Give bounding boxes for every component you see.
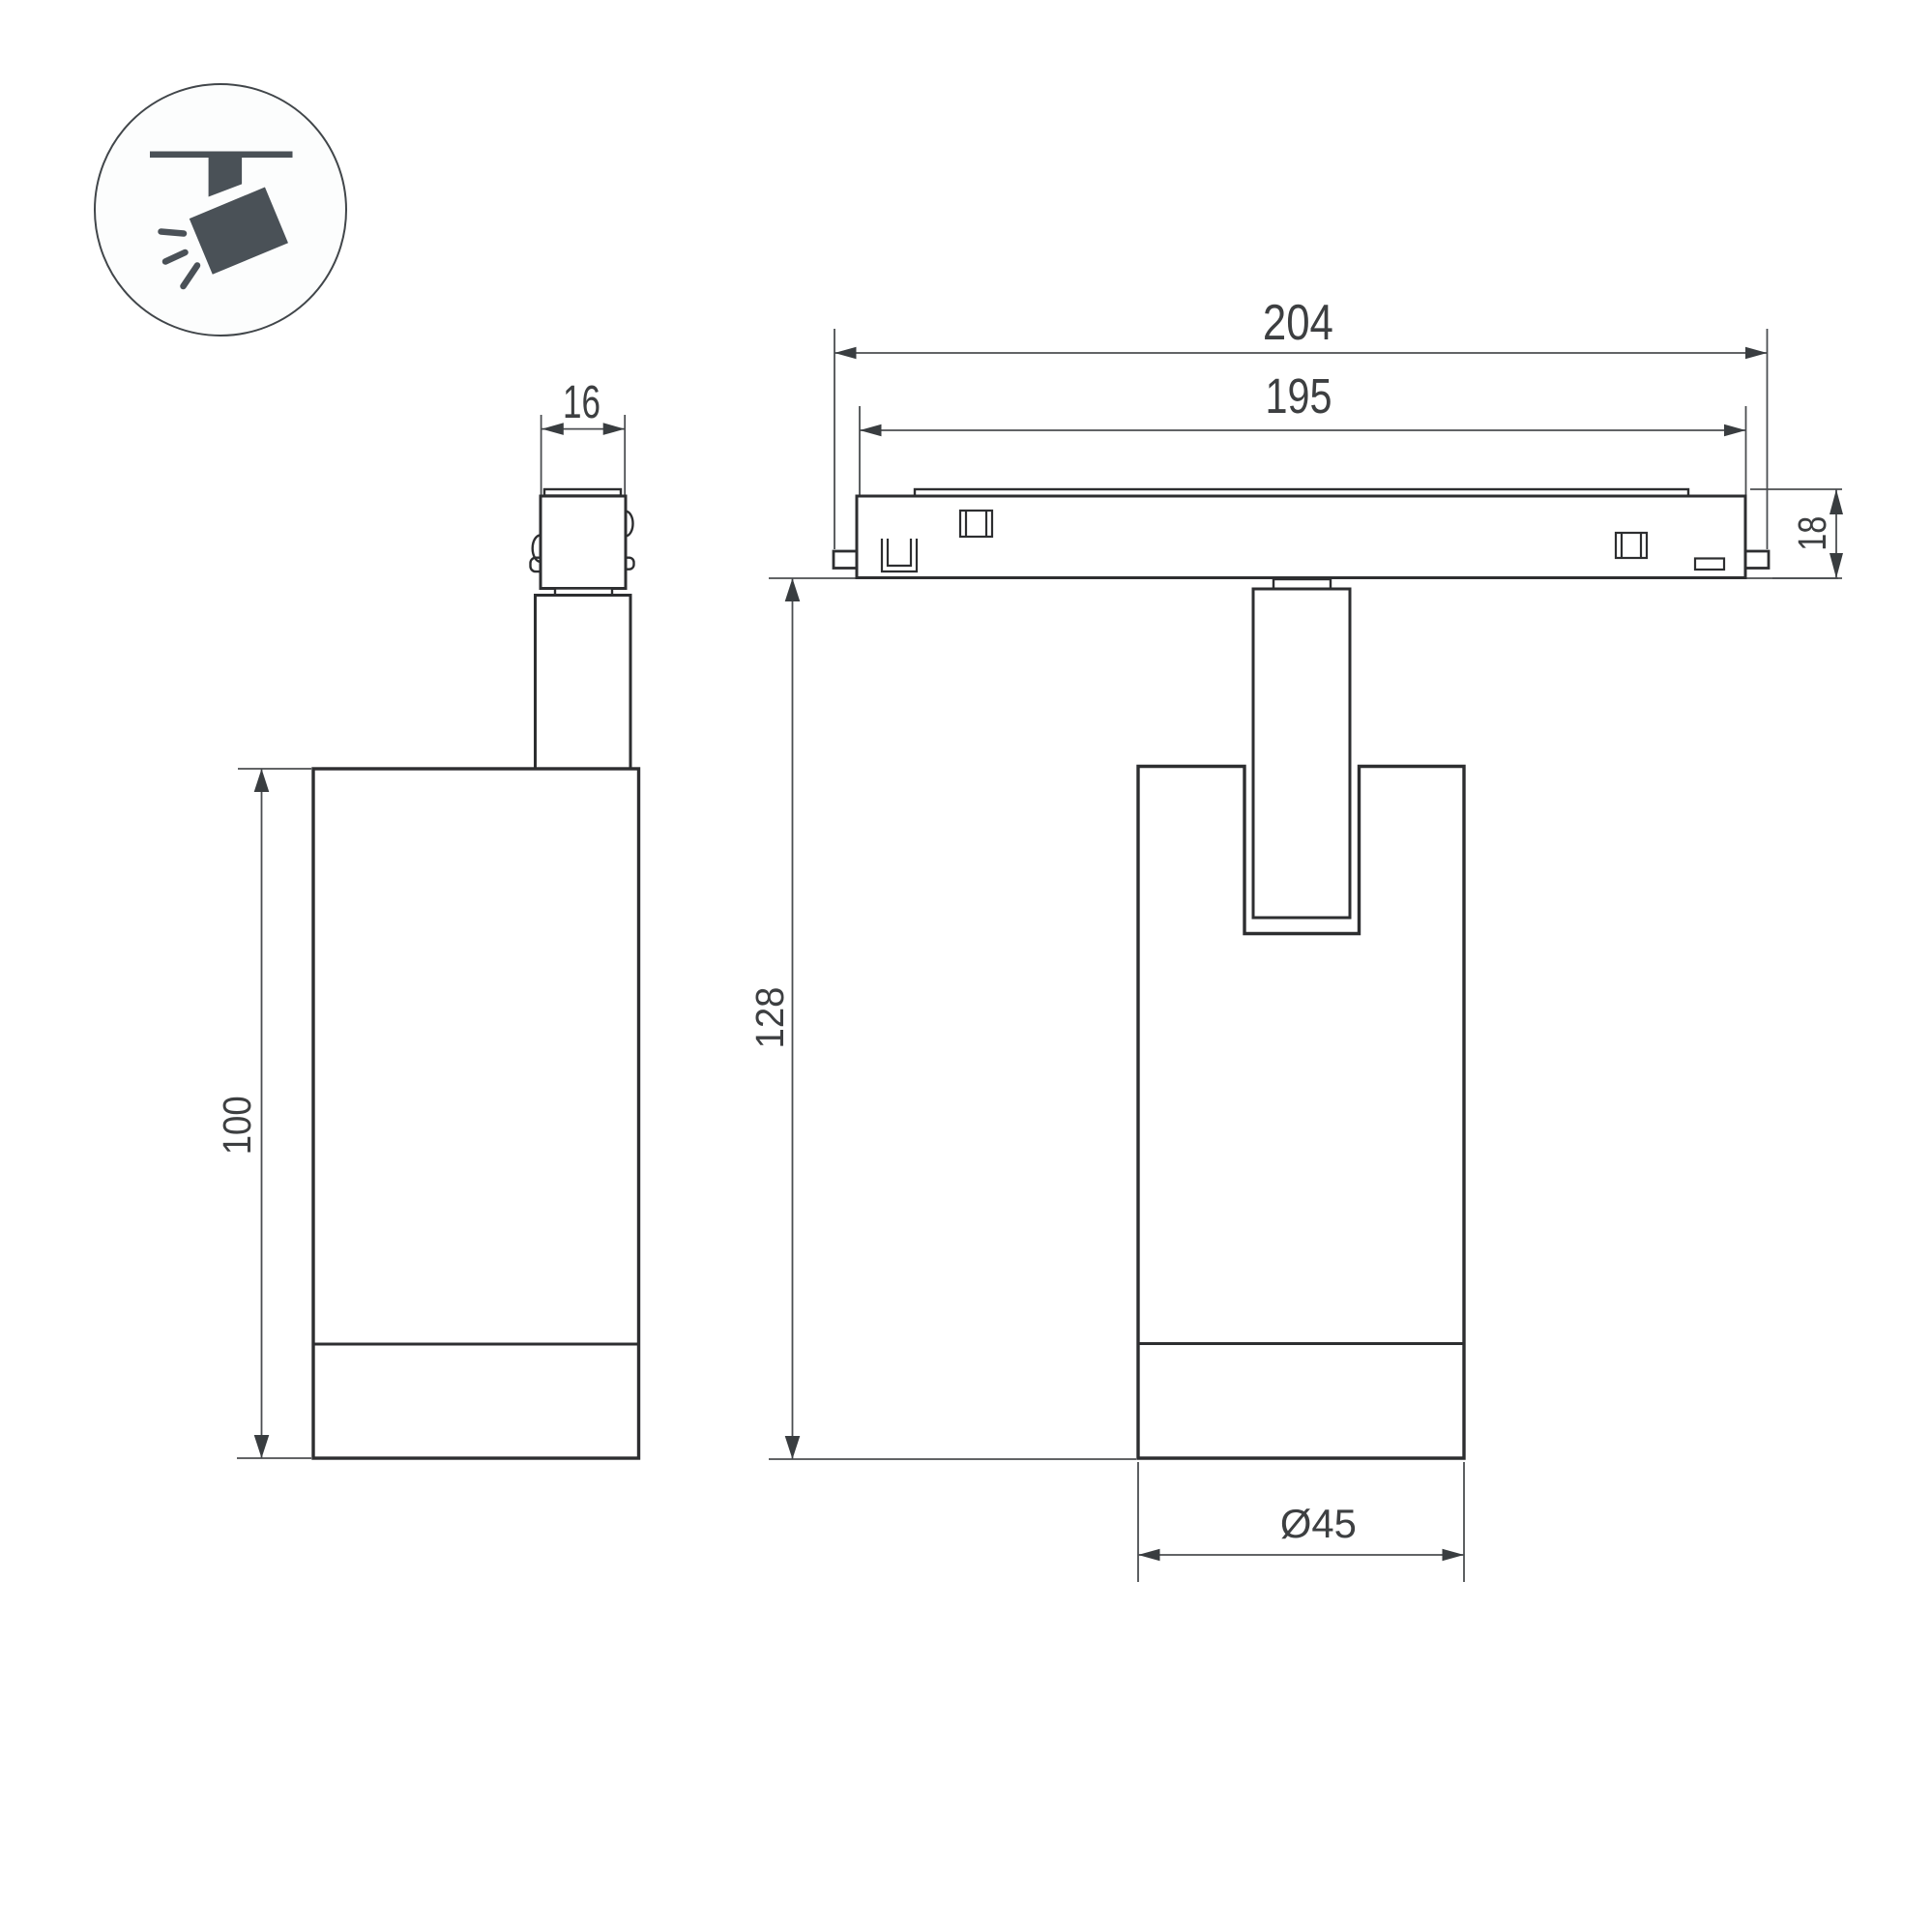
svg-text:128: 128 <box>747 987 792 1049</box>
svg-text:100: 100 <box>215 1096 259 1155</box>
svg-text:204: 204 <box>1263 295 1333 351</box>
svg-text:18: 18 <box>1790 516 1834 551</box>
svg-text:Ø45: Ø45 <box>1280 1501 1357 1546</box>
svg-text:195: 195 <box>1266 368 1332 424</box>
svg-text:16: 16 <box>563 377 600 428</box>
